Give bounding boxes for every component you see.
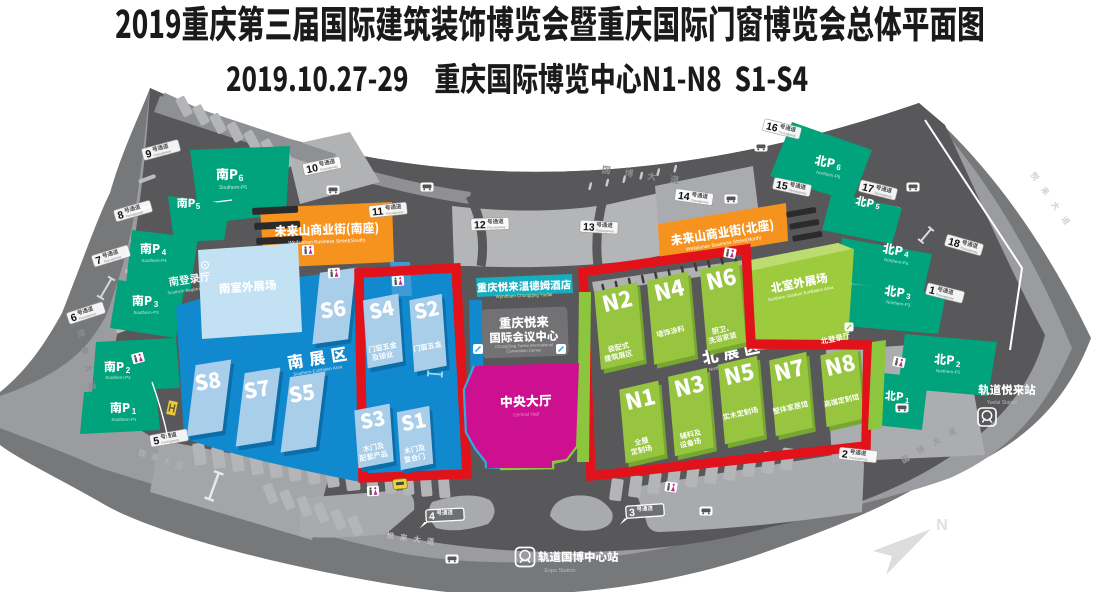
svg-text:Passageway: Passageway — [487, 225, 506, 230]
svg-text:4: 4 — [429, 511, 436, 523]
svg-text:Yuelai Station: Yuelai Station — [987, 400, 1018, 406]
svg-text:12: 12 — [474, 219, 486, 231]
svg-text:Southern-P1: Southern-P1 — [111, 417, 137, 422]
svg-text:Southern-P6: Southern-P6 — [219, 185, 247, 191]
svg-text:6: 6 — [238, 173, 243, 183]
svg-text:13: 13 — [583, 221, 595, 234]
svg-text:Southern-P2: Southern-P2 — [105, 375, 131, 380]
svg-text:3: 3 — [154, 300, 159, 309]
svg-text:Southern-P3: Southern-P3 — [133, 310, 159, 315]
svg-text:3: 3 — [629, 507, 636, 519]
svg-text:4: 4 — [162, 248, 167, 257]
svg-text:1: 1 — [132, 407, 137, 416]
svg-text:Southern-P4: Southern-P4 — [141, 258, 167, 263]
svg-text:Central Hall: Central Hall — [513, 412, 539, 419]
svg-text:14: 14 — [677, 190, 690, 204]
svg-text:N: N — [936, 517, 948, 534]
svg-text:11: 11 — [372, 206, 384, 219]
svg-text:2: 2 — [126, 366, 131, 375]
svg-text:5: 5 — [196, 202, 201, 211]
svg-text:Expo Station: Expo Station — [544, 568, 575, 574]
